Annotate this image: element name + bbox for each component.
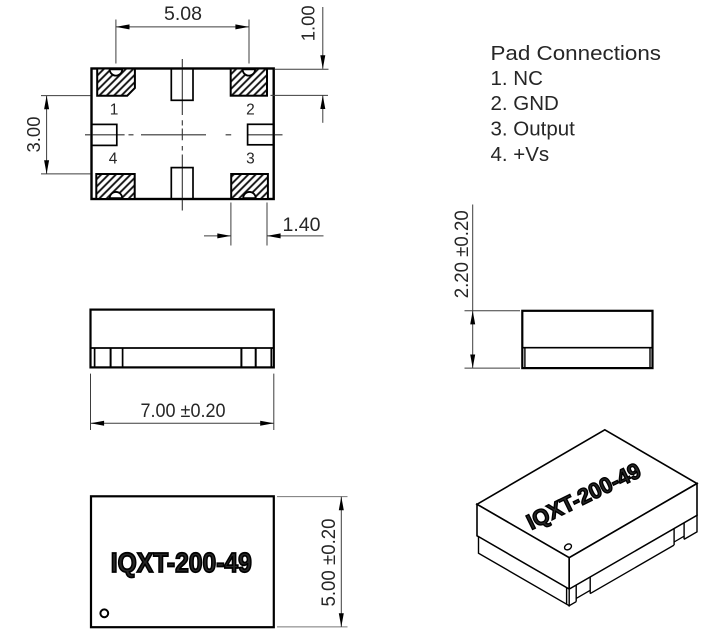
svg-text:IQXT-200-49: IQXT-200-49 (111, 547, 252, 578)
svg-text:1.40: 1.40 (283, 214, 321, 236)
svg-text:3. Output: 3. Output (491, 118, 576, 141)
svg-text:3: 3 (246, 151, 255, 168)
svg-text:5.00 ±0.20: 5.00 ±0.20 (319, 519, 340, 607)
svg-text:1. NC: 1. NC (491, 67, 544, 90)
svg-text:7.00 ±0.20: 7.00 ±0.20 (141, 401, 226, 422)
svg-text:3.00: 3.00 (23, 116, 44, 152)
svg-text:1: 1 (110, 102, 119, 119)
svg-text:2. GND: 2. GND (491, 92, 559, 115)
svg-text:2.20 ±0.20: 2.20 ±0.20 (452, 210, 473, 298)
svg-text:2: 2 (246, 102, 255, 119)
svg-text:1.00: 1.00 (297, 5, 318, 41)
svg-text:Pad Connections: Pad Connections (491, 42, 662, 65)
svg-text:4: 4 (109, 151, 118, 168)
svg-text:4. +Vs: 4. +Vs (491, 143, 550, 166)
svg-text:5.08: 5.08 (164, 3, 202, 25)
